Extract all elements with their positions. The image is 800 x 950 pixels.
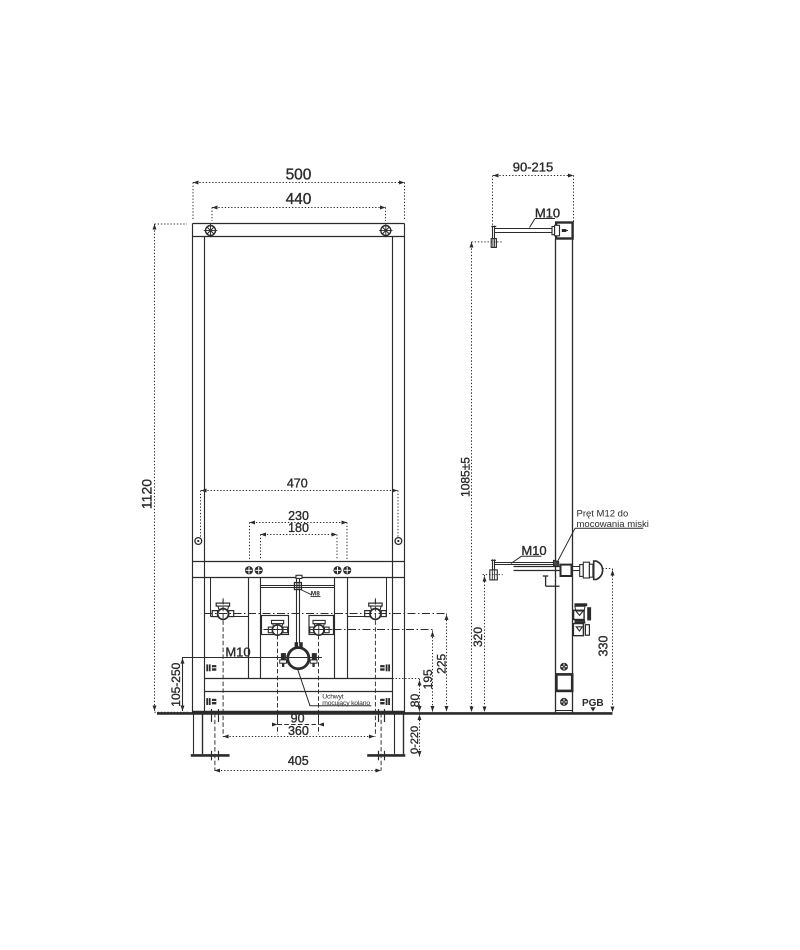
svg-text:0-220: 0-220 [409,726,421,754]
svg-text:180: 180 [288,521,309,535]
svg-text:1085±5: 1085±5 [459,457,473,497]
svg-text:440: 440 [286,191,312,208]
svg-text:195: 195 [421,669,435,689]
svg-text:360: 360 [288,724,309,738]
svg-text:90-215: 90-215 [513,160,553,175]
svg-text:470: 470 [287,476,308,490]
svg-text:105-250: 105-250 [169,662,183,706]
svg-text:Pręt M12 do: Pręt M12 do [577,509,629,520]
svg-text:M10: M10 [225,644,250,659]
svg-text:405: 405 [288,754,309,768]
svg-text:320: 320 [471,627,485,647]
svg-text:225: 225 [435,653,449,673]
svg-text:80: 80 [408,694,422,708]
svg-text:330: 330 [597,636,611,657]
svg-text:mocujący kolano: mocujący kolano [322,700,370,707]
svg-text:500: 500 [286,167,312,184]
svg-text:1120: 1120 [139,479,155,509]
